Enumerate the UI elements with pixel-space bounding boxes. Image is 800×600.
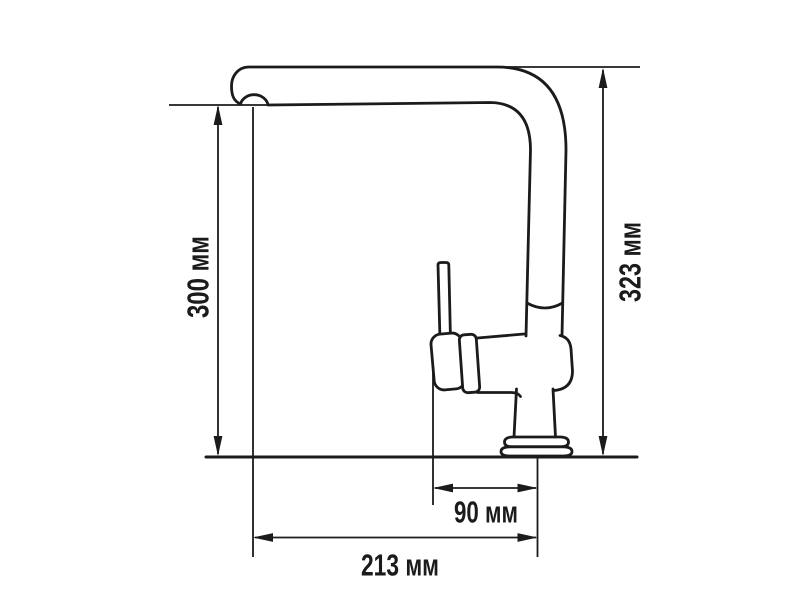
faucet-body-collar-ring xyxy=(459,334,480,393)
faucet-outline-group xyxy=(206,67,637,457)
dimension-label-213mm: 213 мм xyxy=(361,548,439,583)
arrow-213-right xyxy=(518,533,538,542)
dimension-label-323mm: 323 мм xyxy=(613,222,648,302)
faucet-body-top-edge xyxy=(478,334,525,338)
arrow-90-left xyxy=(433,484,453,493)
dimension-labels-group: 300 мм 323 мм 90 мм 213 мм xyxy=(181,222,648,583)
faucet-handle-lever xyxy=(438,263,451,341)
dimension-lines-group xyxy=(169,67,640,557)
dimension-label-300mm: 300 мм xyxy=(181,236,216,318)
faucet-base-flange-upper xyxy=(505,437,569,447)
dimension-label-90mm: 90 мм xyxy=(454,495,518,530)
faucet-body-bottom-edge xyxy=(478,393,521,397)
faucet-base-flange-lower xyxy=(501,447,572,456)
technical-drawing-canvas: 300 мм 323 мм 90 мм 213 мм xyxy=(0,0,800,600)
faucet-spout-tube xyxy=(232,67,567,336)
faucet-pipe-joint-line xyxy=(527,303,563,308)
faucet-dimension-diagram: 300 мм 323 мм 90 мм 213 мм xyxy=(0,0,800,600)
arrow-213-left xyxy=(253,533,273,542)
arrow-323-down xyxy=(599,436,608,456)
faucet-body-right-end xyxy=(554,336,573,391)
arrow-300-down xyxy=(214,436,223,456)
dimension-arrows-group xyxy=(214,68,608,542)
arrow-300-up xyxy=(214,105,223,125)
arrow-323-up xyxy=(599,68,608,88)
arrow-90-right xyxy=(518,484,538,493)
